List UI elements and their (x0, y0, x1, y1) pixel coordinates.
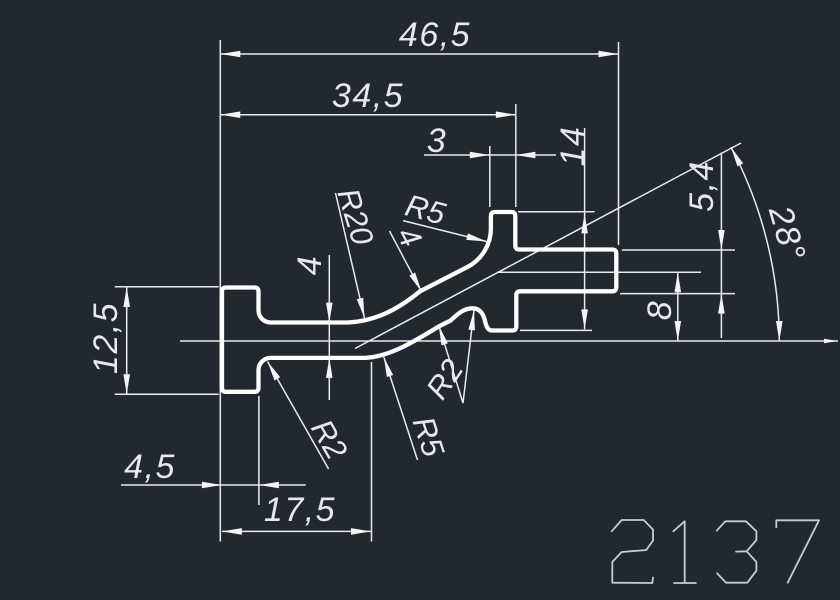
svg-text:4,5: 4,5 (124, 448, 176, 486)
svg-text:12,5: 12,5 (87, 302, 125, 374)
svg-text:14: 14 (554, 126, 592, 167)
svg-text:3: 3 (427, 122, 447, 160)
svg-text:46,5: 46,5 (399, 16, 471, 54)
svg-text:17,5: 17,5 (264, 491, 336, 529)
svg-text:8: 8 (641, 300, 679, 320)
svg-text:5,4: 5,4 (683, 160, 721, 212)
svg-text:34,5: 34,5 (332, 77, 404, 115)
svg-text:4: 4 (291, 255, 329, 275)
